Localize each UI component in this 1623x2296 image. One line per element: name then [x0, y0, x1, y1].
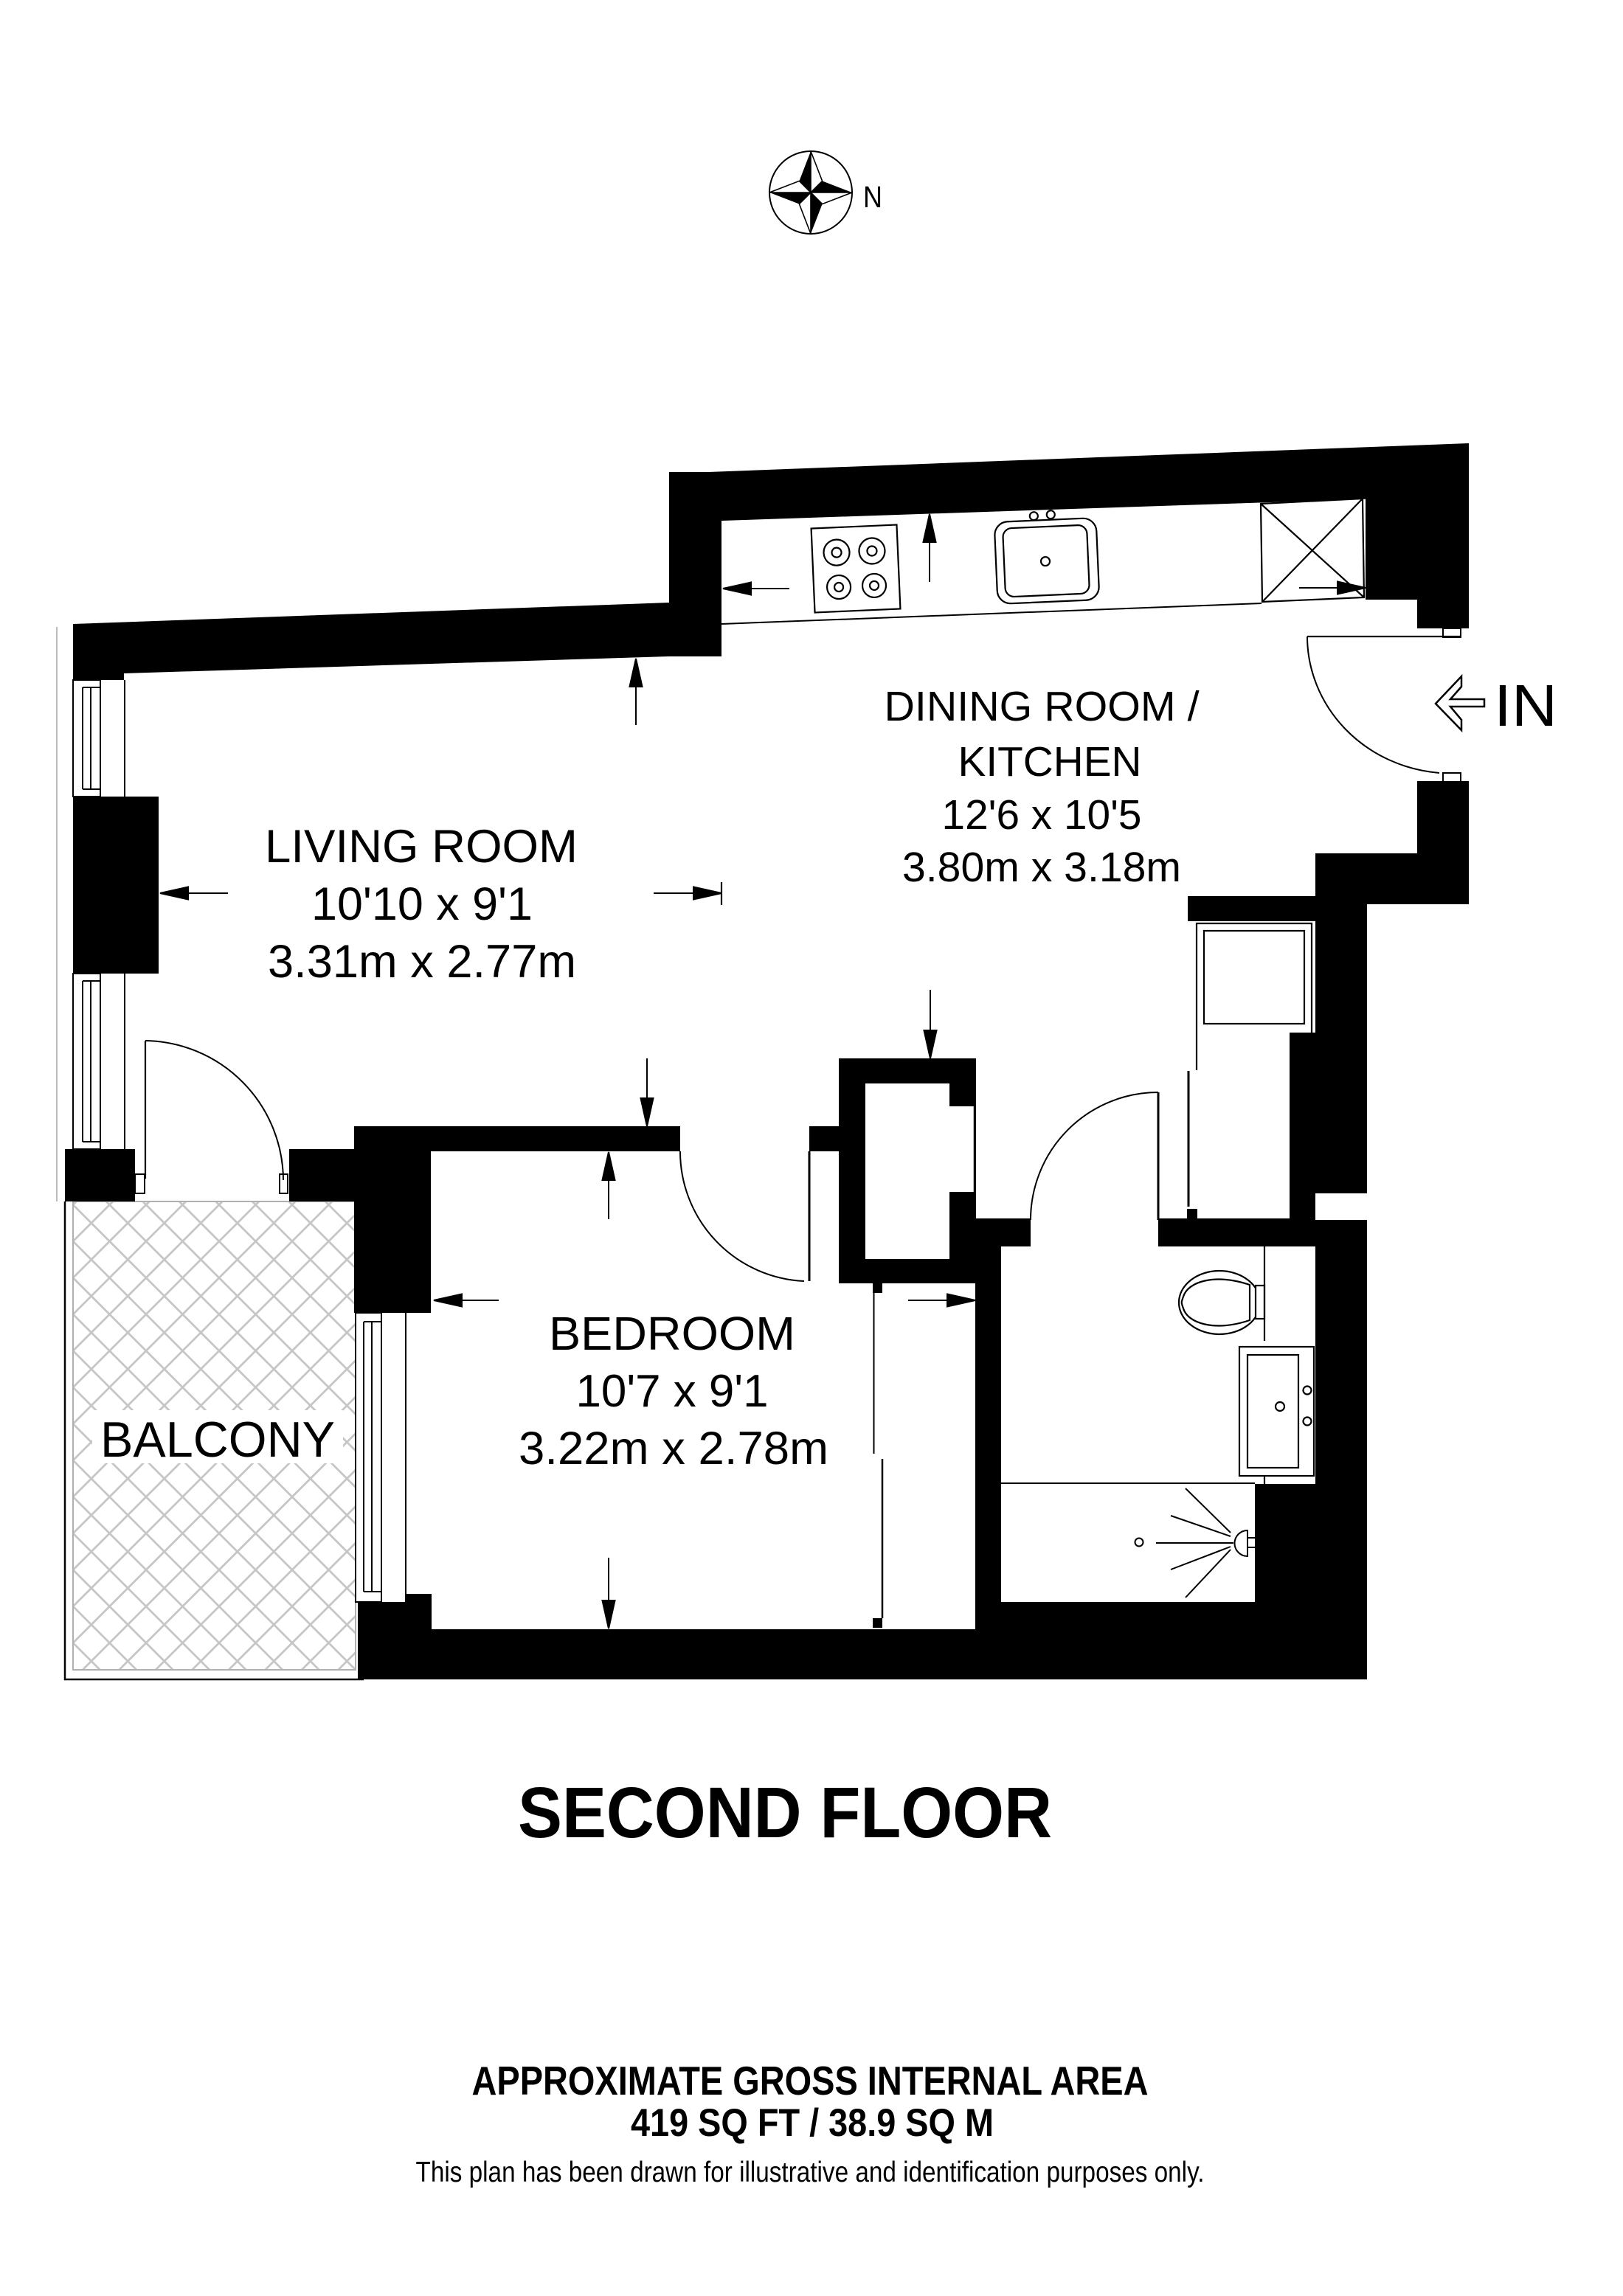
svg-text:3.31m x 2.77m: 3.31m x 2.77m [268, 936, 576, 988]
svg-text:BALCONY: BALCONY [100, 1412, 335, 1468]
svg-text:DINING ROOM /: DINING ROOM / [885, 683, 1200, 730]
svg-text:LIVING ROOM: LIVING ROOM [265, 821, 578, 873]
svg-text:This plan has been drawn for i: This plan has been drawn for illustrativ… [416, 2157, 1205, 2188]
svg-text:10'7 x 9'1: 10'7 x 9'1 [576, 1366, 769, 1417]
svg-text:12'6 x 10'5: 12'6 x 10'5 [942, 791, 1142, 839]
svg-text:SECOND FLOOR: SECOND FLOOR [518, 1772, 1052, 1853]
svg-text:3.80m x 3.18m: 3.80m x 3.18m [902, 844, 1181, 891]
svg-text:419 SQ FT / 38.9 SQ M: 419 SQ FT / 38.9 SQ M [631, 2101, 994, 2145]
svg-text:APPROXIMATE GROSS INTERNAL ARE: APPROXIMATE GROSS INTERNAL AREA [472, 2058, 1149, 2103]
svg-text:IN: IN [1494, 673, 1557, 738]
svg-text:3.22m x 2.78m: 3.22m x 2.78m [519, 1423, 828, 1474]
svg-text:10'10 x 9'1: 10'10 x 9'1 [311, 878, 533, 930]
svg-text:KITCHEN: KITCHEN [958, 738, 1142, 785]
svg-text:N: N [863, 180, 882, 214]
svg-text:BEDROOM: BEDROOM [549, 1307, 795, 1360]
